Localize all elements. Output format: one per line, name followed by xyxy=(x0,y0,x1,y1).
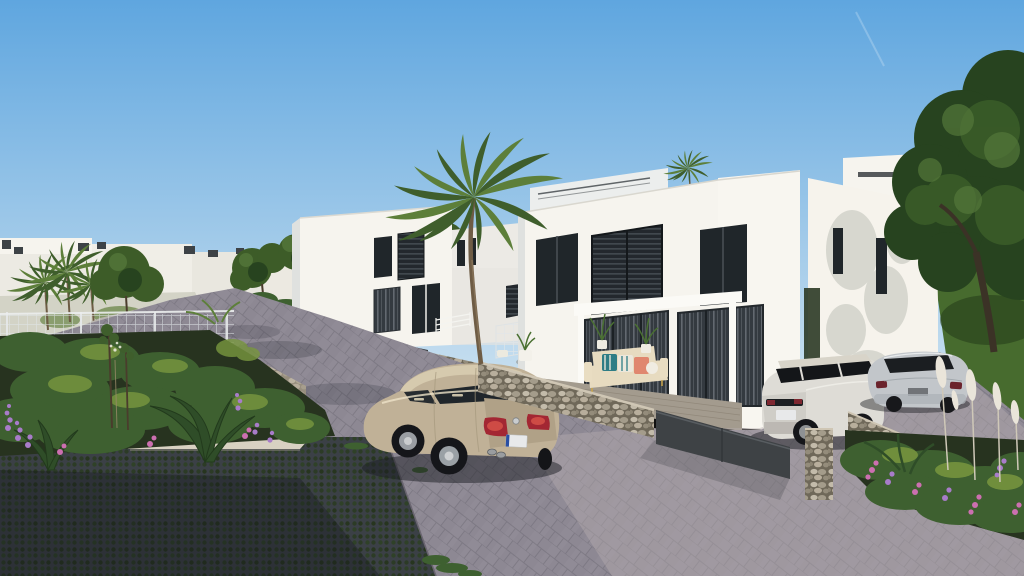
scene-svg xyxy=(0,0,1024,576)
grass-grid-paving xyxy=(0,437,436,576)
taillight xyxy=(876,381,887,389)
slot-window xyxy=(833,228,843,274)
render-canvas xyxy=(0,0,1024,576)
window xyxy=(374,236,392,278)
vw-badge xyxy=(513,418,519,424)
license-plate xyxy=(776,410,796,420)
glass-door xyxy=(374,287,400,333)
taillight xyxy=(950,382,962,390)
slot-window xyxy=(876,238,887,294)
sliding-glass-door xyxy=(678,305,763,406)
pergola-post xyxy=(729,295,736,415)
exhaust xyxy=(488,449,497,455)
license-plate xyxy=(506,434,528,447)
